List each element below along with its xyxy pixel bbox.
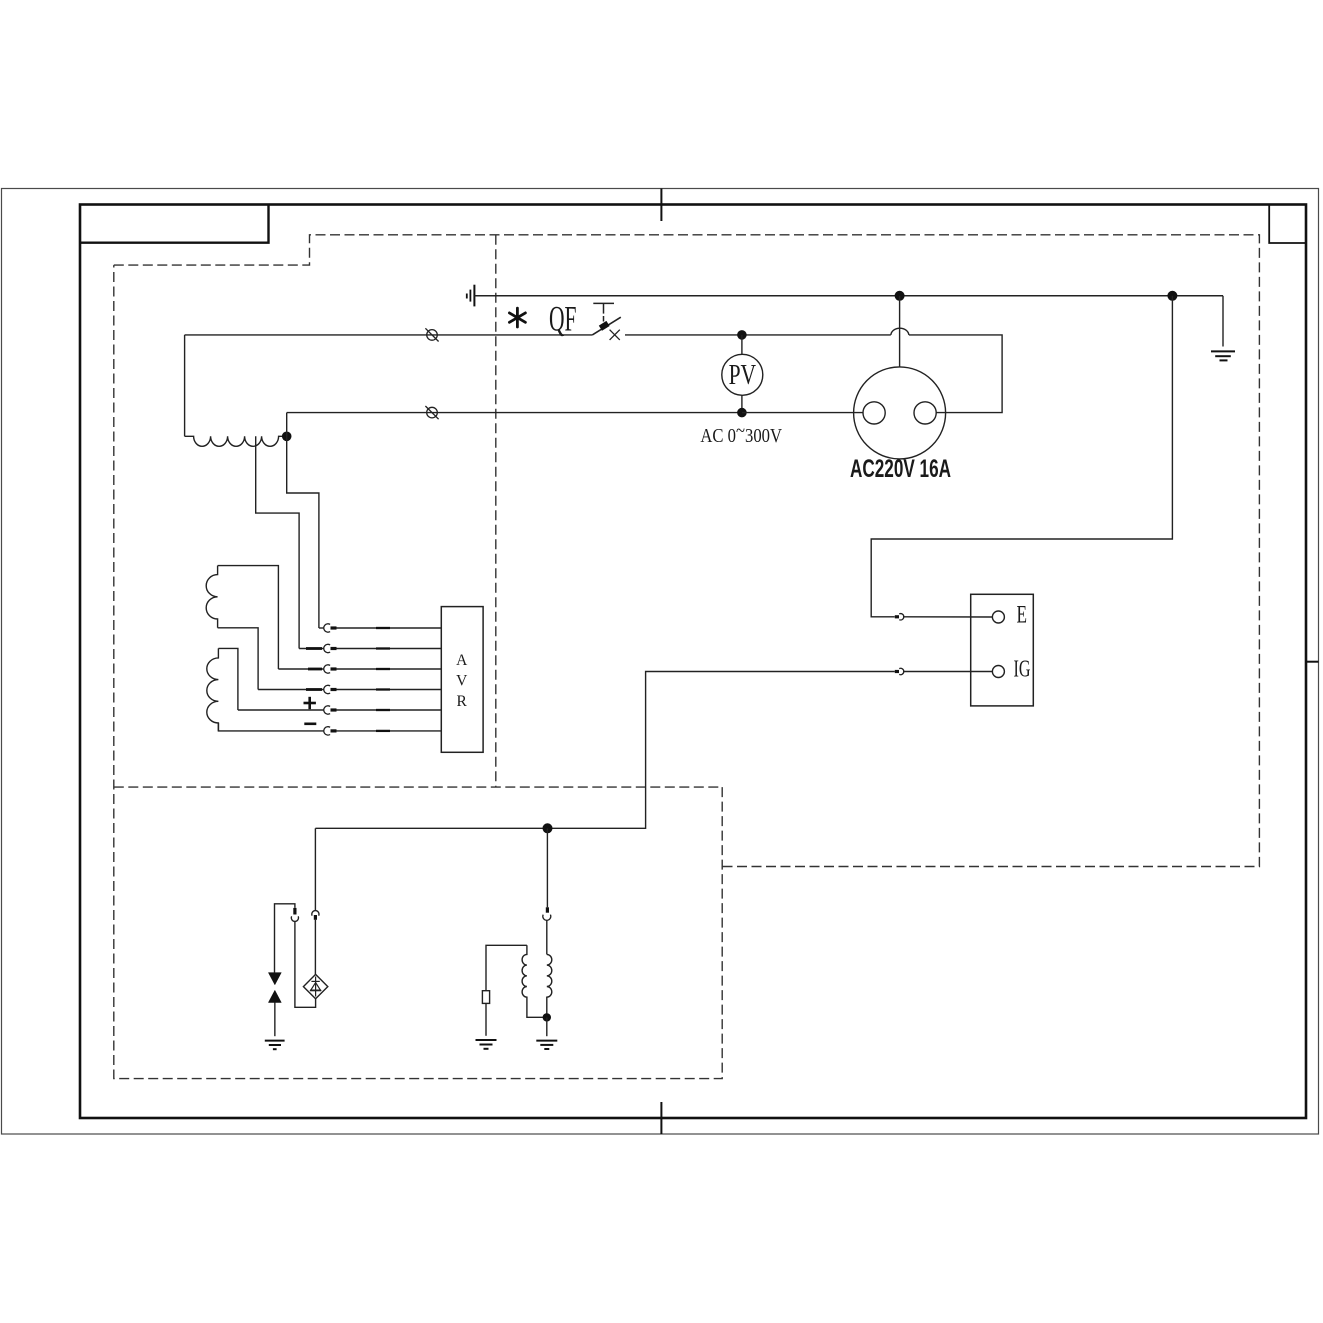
svg-text:QF: QF: [549, 299, 577, 339]
svg-text:V: V: [456, 673, 468, 690]
svg-text:R: R: [457, 693, 468, 710]
svg-text:PV: PV: [729, 359, 757, 391]
svg-text:A: A: [456, 652, 468, 669]
svg-text:IG: IG: [1014, 657, 1031, 683]
svg-text:AC220V 16A: AC220V 16A: [850, 455, 951, 483]
svg-text:E: E: [1017, 602, 1028, 629]
